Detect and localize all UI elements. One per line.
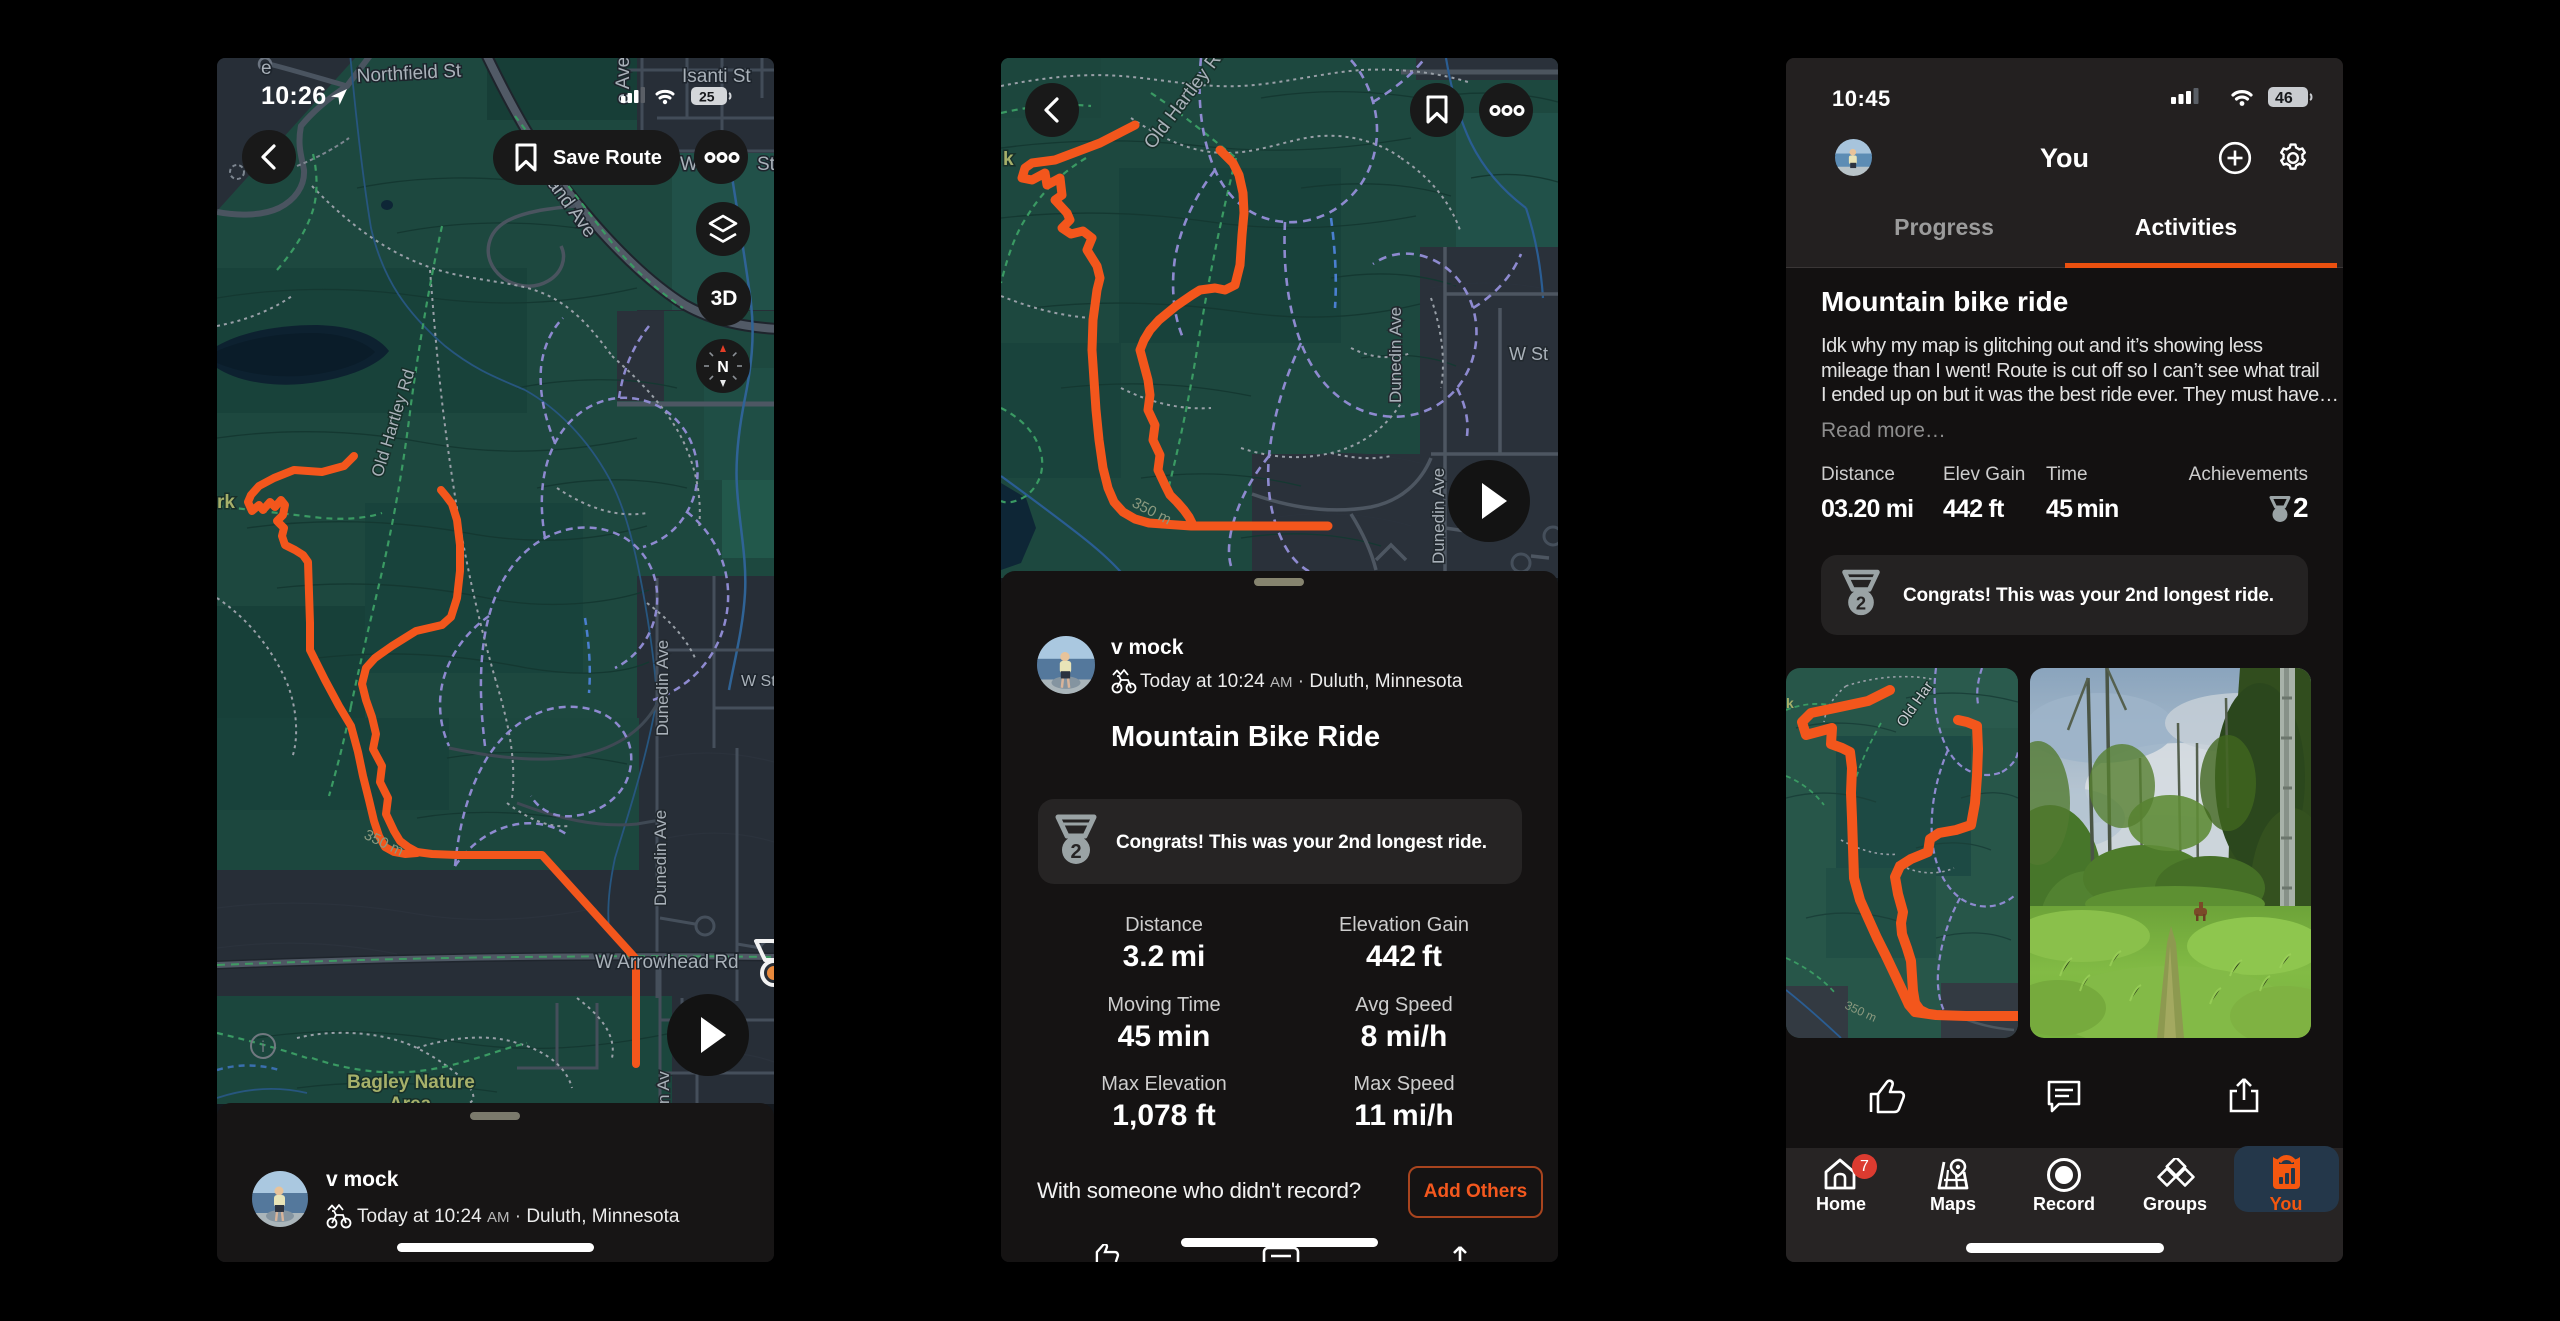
svg-text:k: k [1786,695,1794,711]
svg-text:n Av: n Av [654,1071,673,1104]
svg-text:e: e [261,58,272,79]
svg-text:rk: rk [217,492,235,513]
svg-text:2: 2 [1856,593,1866,614]
svg-text:N: N [717,359,729,376]
svg-text:k: k [1003,149,1014,170]
svg-text:Bagley Nature: Bagley Nature [347,1072,475,1093]
svg-text:Dunedin Ave: Dunedin Ave [1429,468,1448,564]
svg-text:W Arrowhead Rd: W Arrowhead Rd [595,952,739,973]
svg-text:Isanti St: Isanti St [682,66,751,87]
svg-text:Dunedin Ave: Dunedin Ave [651,810,670,906]
svg-text:2: 2 [1070,841,1081,863]
svg-text:Dunedin Ave: Dunedin Ave [653,640,672,736]
svg-text:W St A: W St A [741,673,774,690]
svg-text:25: 25 [699,89,715,105]
svg-text:W St: W St [1509,344,1548,364]
svg-text:46: 46 [2275,90,2293,107]
svg-text:Dunedin Ave: Dunedin Ave [1386,307,1405,403]
svg-text:St: St [757,154,774,175]
svg-text:i: i [261,1039,265,1056]
